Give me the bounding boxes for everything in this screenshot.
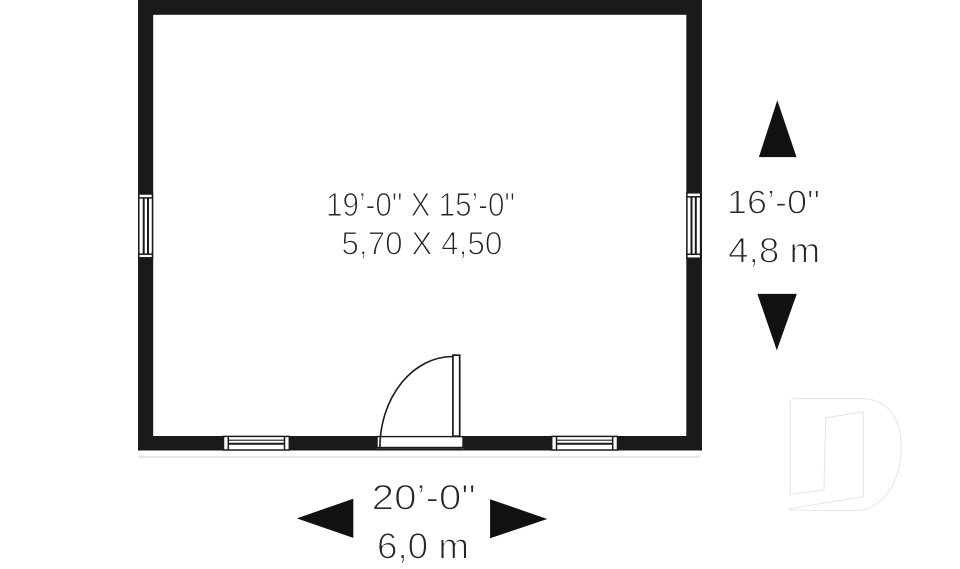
svg-text:16’-0": 16’-0" [727, 184, 820, 221]
svg-text:19’-0" X 15’-0": 19’-0" X 15’-0" [326, 186, 515, 223]
svg-text:6,0 m: 6,0 m [377, 525, 469, 566]
svg-text:5,70 X 4,50: 5,70 X 4,50 [341, 226, 502, 262]
svg-text:4,8 m: 4,8 m [728, 231, 820, 271]
svg-text:20’-0": 20’-0" [372, 478, 476, 518]
